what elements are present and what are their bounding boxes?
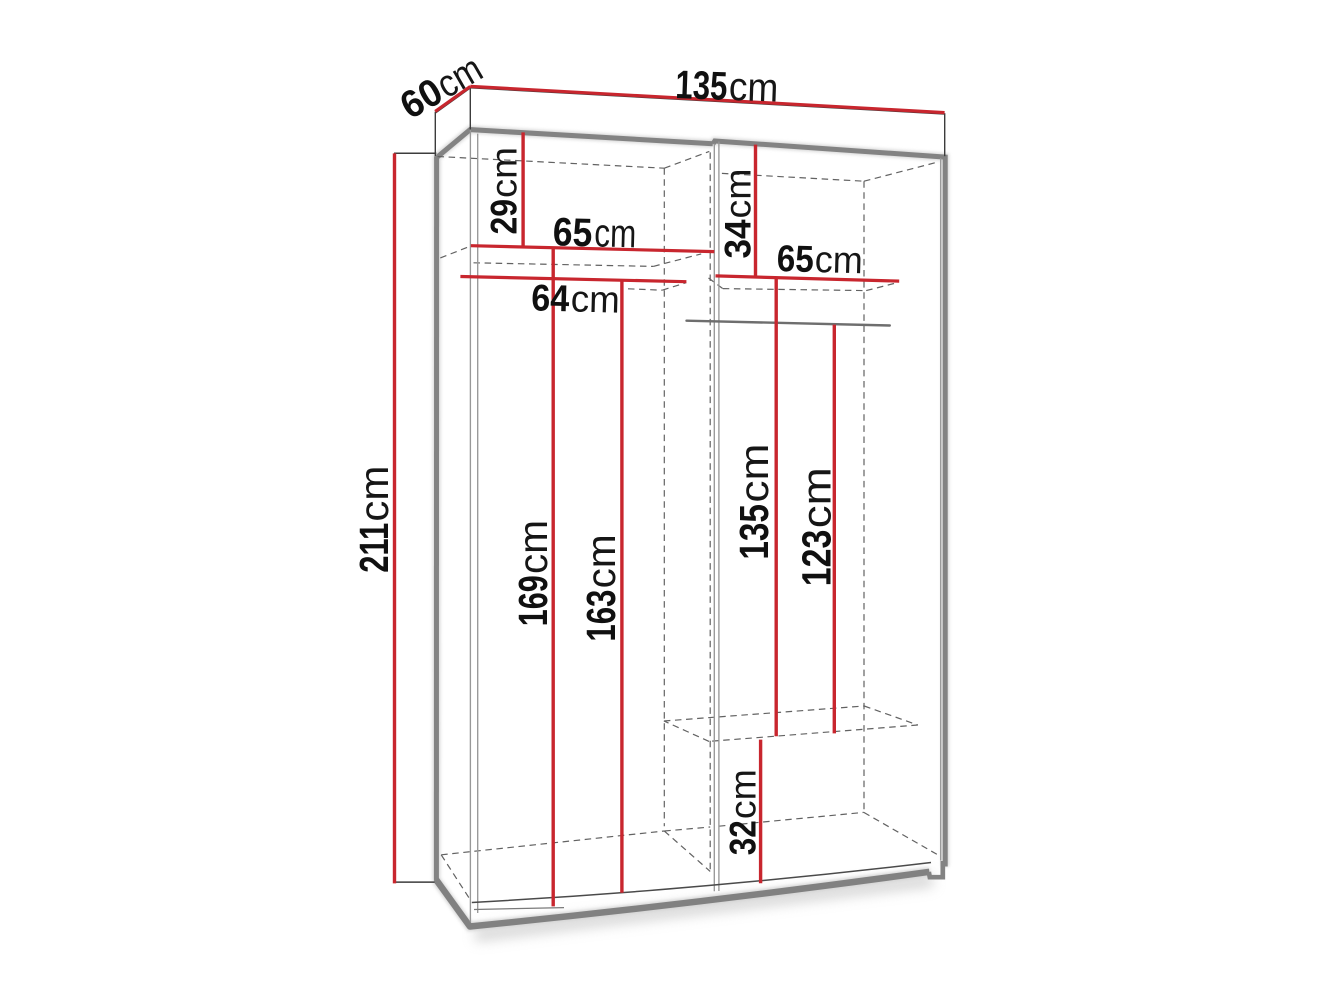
svg-text:cm: cm	[484, 147, 525, 198]
svg-text:32: 32	[722, 820, 763, 855]
svg-text:34: 34	[718, 219, 759, 258]
svg-text:cm: cm	[814, 238, 863, 281]
svg-text:163: 163	[578, 590, 624, 642]
svg-text:cm: cm	[510, 520, 556, 574]
svg-text:cm: cm	[570, 277, 620, 320]
svg-text:65: 65	[776, 237, 814, 280]
svg-text:29: 29	[484, 199, 525, 235]
svg-text:cm: cm	[794, 467, 840, 528]
svg-text:64: 64	[531, 276, 570, 319]
svg-text:135: 135	[731, 504, 777, 560]
svg-text:cm: cm	[731, 444, 777, 503]
svg-text:cm: cm	[728, 65, 779, 111]
svg-text:cm: cm	[578, 534, 624, 588]
svg-text:135: 135	[675, 63, 729, 109]
svg-text:cm: cm	[594, 211, 637, 256]
svg-text:cm: cm	[351, 466, 397, 522]
svg-text:211: 211	[351, 523, 397, 573]
svg-text:cm: cm	[718, 169, 759, 219]
svg-text:65: 65	[552, 210, 593, 255]
svg-text:123: 123	[794, 530, 840, 587]
svg-text:169: 169	[510, 575, 556, 626]
svg-text:cm: cm	[722, 769, 763, 819]
